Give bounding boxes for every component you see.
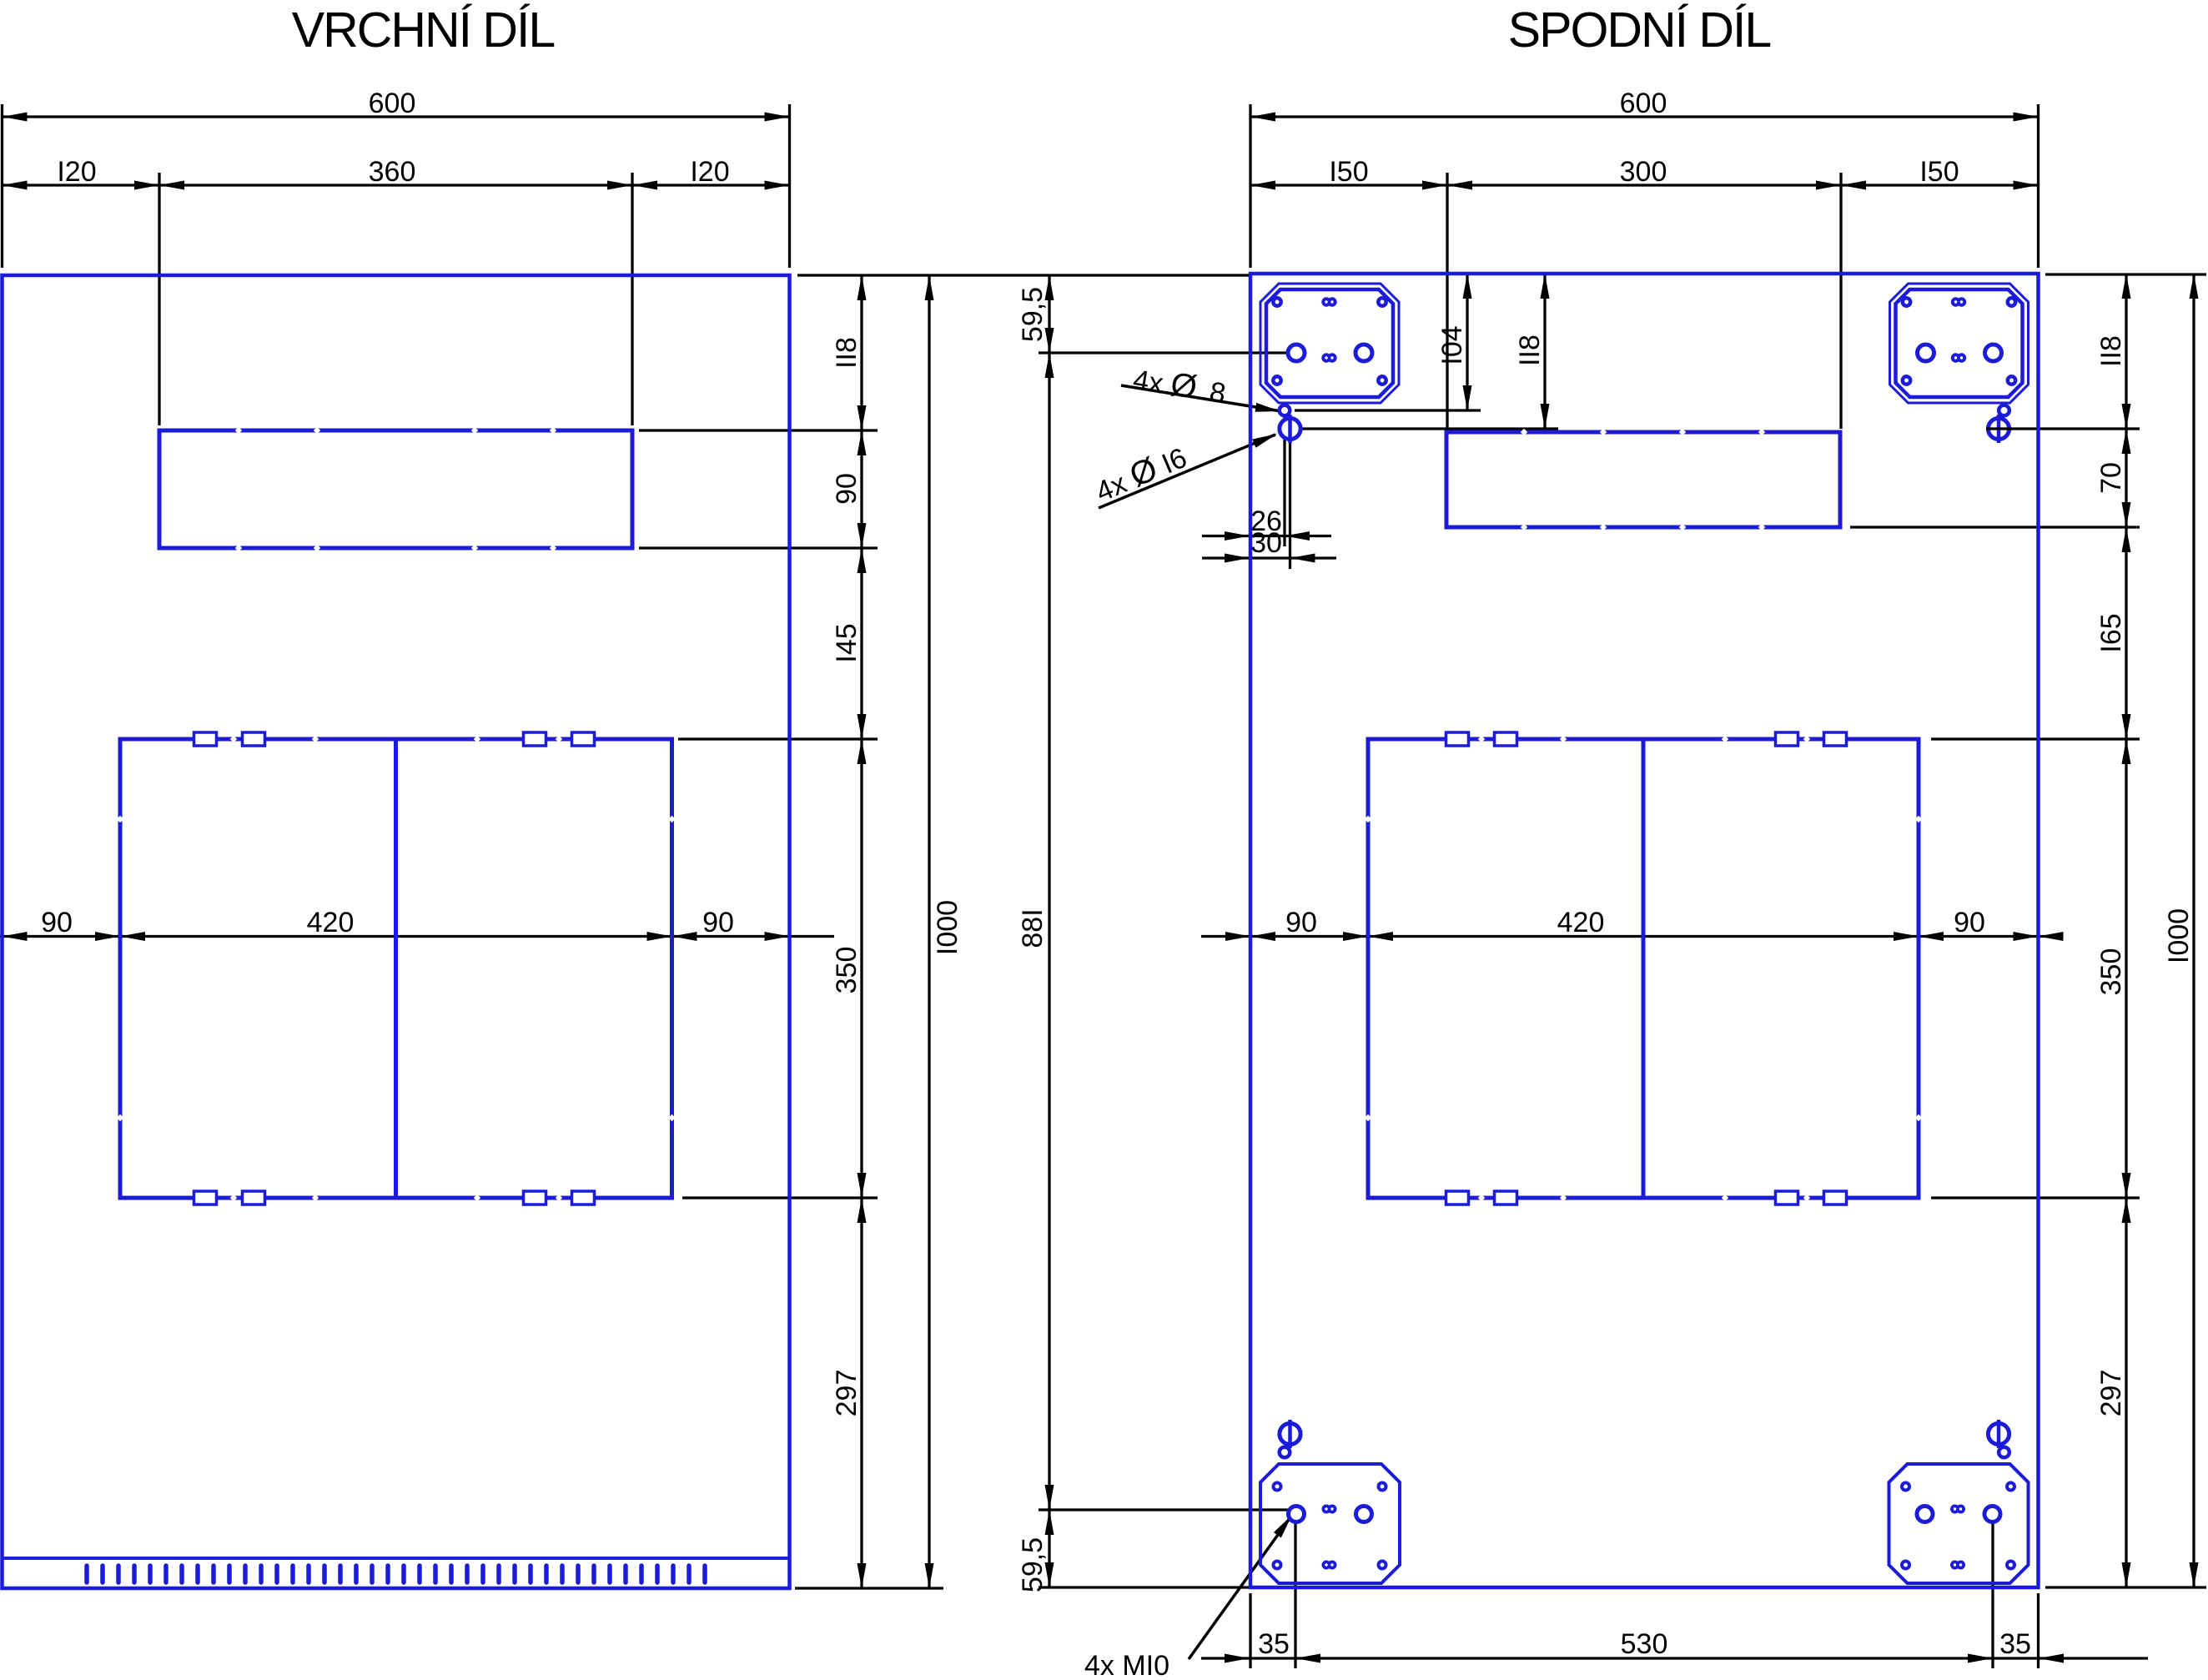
svg-text:350: 350: [2095, 948, 2127, 996]
svg-text:420: 420: [1557, 907, 1605, 938]
svg-text:90: 90: [1954, 907, 1985, 938]
svg-text:I50: I50: [1329, 156, 1368, 188]
svg-text:II8: II8: [2095, 335, 2127, 367]
svg-text:35: 35: [1258, 1628, 1290, 1660]
svg-text:I000: I000: [2163, 908, 2195, 963]
svg-text:30: 30: [1250, 527, 1282, 559]
svg-text:90: 90: [1285, 907, 1317, 938]
svg-text:360: 360: [369, 156, 416, 188]
svg-text:530: 530: [1621, 1628, 1668, 1660]
svg-text:I50: I50: [1919, 156, 1959, 188]
svg-text:59,5: 59,5: [1017, 1537, 1049, 1592]
svg-text:350: 350: [831, 947, 863, 994]
svg-text:4x MI0: 4x MI0: [1084, 1650, 1169, 1680]
svg-text:70: 70: [2095, 462, 2127, 494]
svg-text:I20: I20: [57, 156, 96, 188]
svg-text:600: 600: [1620, 88, 1667, 119]
svg-text:297: 297: [2095, 1370, 2127, 1417]
svg-text:II8: II8: [1514, 334, 1546, 366]
svg-text:59,5: 59,5: [1017, 287, 1049, 342]
svg-text:I20: I20: [690, 156, 729, 188]
svg-text:SPODNÍ DÍL: SPODNÍ DÍL: [1508, 3, 1771, 58]
svg-text:300: 300: [1620, 156, 1667, 188]
svg-text:420: 420: [307, 907, 355, 938]
svg-text:88I: 88I: [1017, 908, 1049, 948]
svg-text:90: 90: [831, 473, 863, 505]
svg-text:I45: I45: [831, 623, 863, 662]
svg-text:VRCHNÍ DÍL: VRCHNÍ DÍL: [292, 3, 555, 58]
svg-text:II8: II8: [831, 337, 863, 369]
svg-text:90: 90: [41, 907, 73, 938]
svg-text:I000: I000: [932, 900, 963, 955]
svg-text:297: 297: [831, 1370, 863, 1417]
svg-text:35: 35: [1999, 1628, 2031, 1660]
svg-text:I65: I65: [2095, 613, 2127, 652]
svg-text:I04: I04: [1436, 325, 1468, 365]
svg-text:600: 600: [369, 88, 416, 119]
svg-text:90: 90: [702, 907, 734, 938]
